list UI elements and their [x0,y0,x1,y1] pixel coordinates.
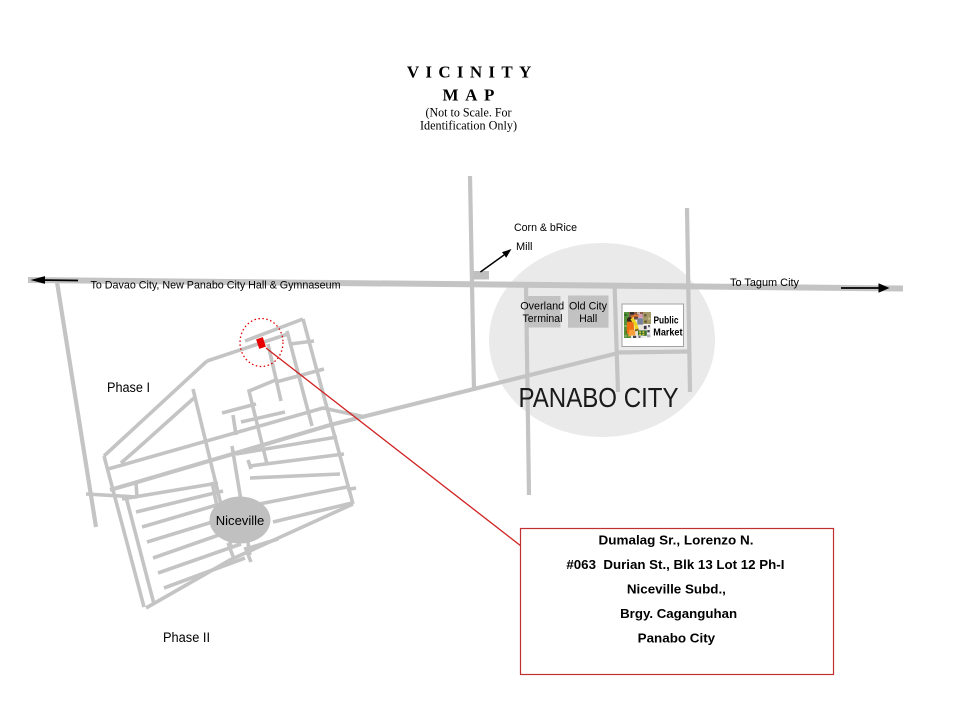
svg-text:PANABO CITY: PANABO CITY [519,382,679,413]
svg-text:Phase II: Phase II [163,630,210,645]
svg-text:Hall: Hall [579,313,597,325]
svg-text:Brgy. Caganguhan: Brgy. Caganguhan [620,606,737,621]
svg-text:To Tagum City: To Tagum City [730,277,799,289]
svg-text:Old City: Old City [569,301,607,313]
svg-text:To Davao City, New Panabo City: To Davao City, New Panabo City Hall & Gy… [91,280,341,292]
svg-text:Identification Only): Identification Only) [420,118,517,132]
svg-text:#063 Durian St., Blk 13 Lot 1: #063 Durian St., Blk 13 Lot 12 Ph-I [566,557,784,572]
svg-text:VICINITY: VICINITY [407,63,538,82]
svg-text:Public: Public [654,315,679,327]
svg-text:Niceville: Niceville [216,513,265,528]
svg-text:Market: Market [653,327,683,339]
svg-text:Overland: Overland [520,301,564,313]
svg-text:Terminal: Terminal [523,313,563,325]
svg-text:Niceville Subd.,: Niceville Subd., [627,581,726,596]
svg-text:Mill: Mill [516,241,533,253]
svg-text:Panabo City: Panabo City [638,630,716,645]
svg-text:Phase I: Phase I [107,380,150,395]
svg-text:Dumalag Sr., Lorenzo N.: Dumalag Sr., Lorenzo N. [599,532,754,547]
svg-text:MAP: MAP [443,86,502,105]
svg-text:Corn & bRice: Corn & bRice [514,222,577,234]
